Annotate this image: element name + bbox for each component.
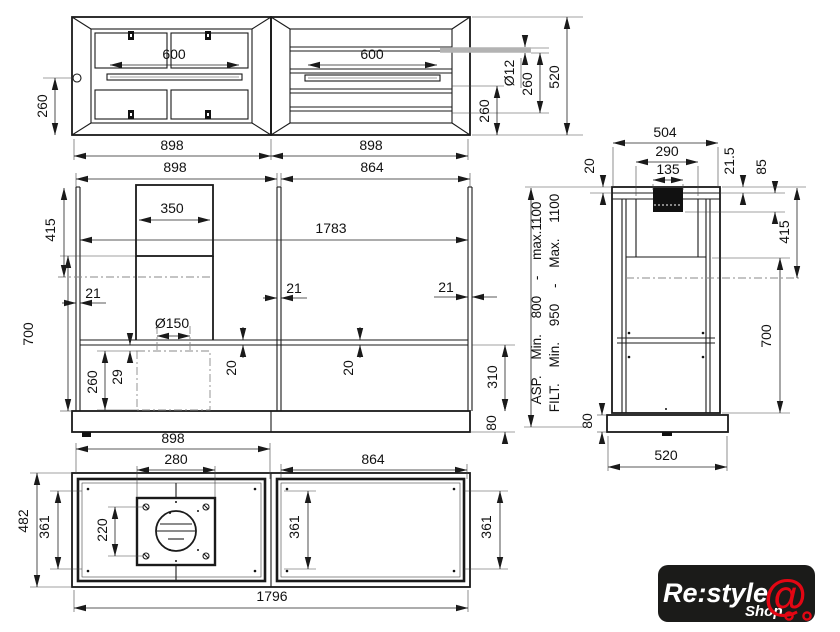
dim-side-panel-thickness: 20 xyxy=(581,158,597,174)
dim-top-rear-offset: 260 xyxy=(476,99,492,123)
dim-bottom-width-left: 898 xyxy=(161,430,185,446)
dim-bottom-plate-depth: 220 xyxy=(94,518,110,542)
logo-cart-at-icon: @ xyxy=(764,571,807,620)
dim-side-depth-top: 504 xyxy=(653,124,677,140)
dim-front-duct-dia: Ø150 xyxy=(155,315,189,331)
dim-side-body-height: 700 xyxy=(758,324,774,348)
dim-front-body-height: 700 xyxy=(20,322,36,346)
dim-front-upper-height: 415 xyxy=(42,218,58,242)
dim-side-inner-depth: 290 xyxy=(655,143,679,159)
dim-front-shelf-thickness-left: 20 xyxy=(223,360,239,376)
side-hole xyxy=(73,74,81,82)
top-view: 600 600 260 898 898 Ø12 260 260 520 xyxy=(34,17,583,160)
front-view: 898 864 350 1783 415 700 21 21 21 Ø150 2… xyxy=(20,159,515,444)
dim-front-thickness-right: 21 xyxy=(438,279,454,295)
dim-bottom-depth-total: 482 xyxy=(15,509,31,533)
dim-top-depth-left: 260 xyxy=(34,94,50,118)
dim-top-width-right: 898 xyxy=(359,137,383,153)
dim-bottom-inner-depth-left: 361 xyxy=(36,515,52,539)
side-view: 504 290 135 20 21.5 85 415 700 80 xyxy=(524,124,806,471)
dim-top-depth-total: 520 xyxy=(546,65,562,89)
dim-front-lower-height: 310 xyxy=(484,365,500,389)
dim-front-thickness-mid: 21 xyxy=(286,280,302,296)
side-plinth xyxy=(607,415,728,432)
dim-front-width-left: 898 xyxy=(163,159,187,175)
bottom-view: 898 280 864 482 361 220 361 361 1796 xyxy=(15,430,508,612)
dim-front-base-height: 80 xyxy=(483,415,499,431)
motor-box-hidden xyxy=(137,351,210,410)
restyle-shop-logo: Re:style Shop @ xyxy=(658,565,815,622)
foot xyxy=(82,432,91,437)
note-filtering-height: FILT. Min. 950 - Max. 1100 xyxy=(547,194,562,413)
technical-drawing-page: 600 600 260 898 898 Ø12 260 260 520 xyxy=(0,0,840,632)
motor-plate xyxy=(137,498,215,565)
dim-bottom-width-right: 864 xyxy=(361,451,385,467)
dim-top-rod-dia: Ø12 xyxy=(501,60,517,87)
chimney-slot xyxy=(653,188,683,212)
dim-side-slot-depth: 135 xyxy=(656,161,680,177)
dim-front-box-gap: 29 xyxy=(109,369,125,385)
dim-top-rail-left: 600 xyxy=(162,46,186,62)
dim-bottom-inner-depth-mid: 361 xyxy=(286,515,302,539)
dim-side-slot-height: 85 xyxy=(753,159,769,175)
dim-bottom-inner-depth-right: 361 xyxy=(478,515,494,539)
dim-side-upper-height: 415 xyxy=(776,220,792,244)
dim-front-thickness-left: 21 xyxy=(85,285,101,301)
note-aspirating-height: ASP. Min. 800 - max.1100 xyxy=(529,202,544,405)
dim-front-box-height: 260 xyxy=(84,370,100,394)
dim-bottom-width-total: 1796 xyxy=(256,588,287,604)
dim-top-width-left: 898 xyxy=(160,137,184,153)
chimney xyxy=(136,185,213,256)
dim-top-rod-offset: 260 xyxy=(519,72,535,96)
dim-front-chimney-width: 350 xyxy=(160,200,184,216)
hood-dimension-drawing: 600 600 260 898 898 Ø12 260 260 520 xyxy=(0,0,840,632)
dim-side-base-height: 80 xyxy=(579,413,595,429)
dim-side-base-depth: 520 xyxy=(654,447,678,463)
side-foot xyxy=(662,432,672,436)
dim-front-inner-width: 1783 xyxy=(315,220,346,236)
dim-side-slot-inset: 21.5 xyxy=(721,147,737,174)
dim-front-width-right: 864 xyxy=(360,159,384,175)
panel-clips xyxy=(128,31,211,119)
dim-top-rail-right: 600 xyxy=(360,46,384,62)
dim-front-shelf-thickness-right: 20 xyxy=(340,360,356,376)
dim-bottom-plate-width: 280 xyxy=(164,451,188,467)
